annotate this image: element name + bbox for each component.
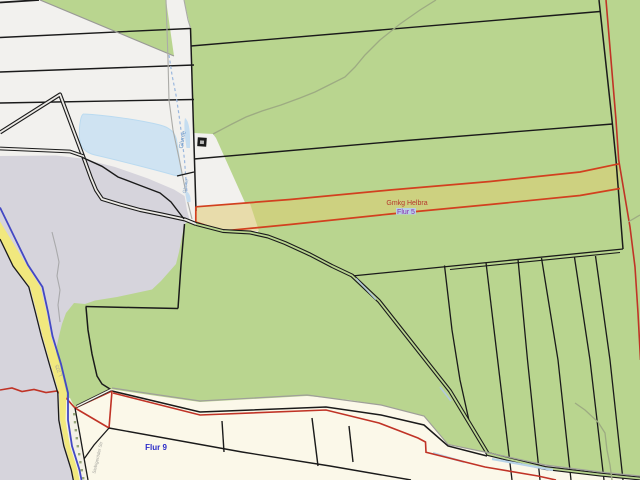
svg-text:Gmkg Helbra: Gmkg Helbra <box>386 200 427 207</box>
svg-text:Flur 9: Flur 9 <box>145 443 167 452</box>
svg-text:Flur 5: Flur 5 <box>397 209 415 216</box>
